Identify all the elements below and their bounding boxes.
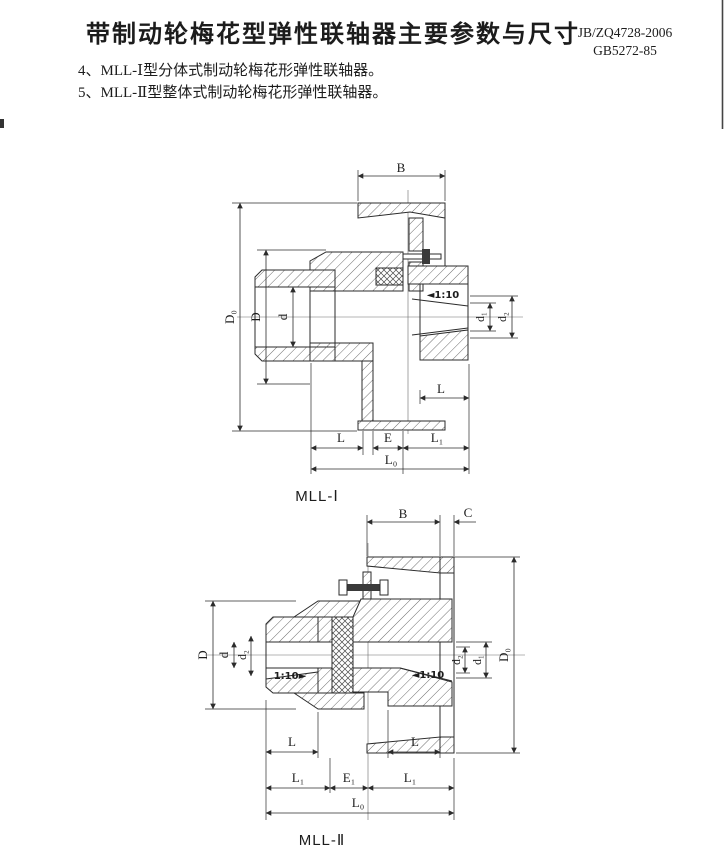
brake-rim-cap-top bbox=[440, 557, 454, 573]
dim-label-d-2: d bbox=[216, 651, 231, 658]
left-jaw-upper bbox=[318, 617, 332, 642]
brake-wheel-web-upper bbox=[409, 218, 423, 251]
left-flange-upper-2 bbox=[294, 601, 364, 617]
dim-label-d2r-2: d₂ bbox=[451, 655, 463, 665]
brake-wheel-rim-bottom bbox=[358, 421, 445, 430]
dim-label-d-1: d bbox=[275, 313, 290, 320]
dim-label-D-1: D bbox=[248, 312, 263, 321]
dim-label-L1l-2: L₁ bbox=[292, 770, 304, 785]
dim-label-E-1: E bbox=[384, 430, 392, 445]
right-hub-lower bbox=[420, 330, 468, 360]
dim-label-d1-2: d₁ bbox=[472, 655, 484, 665]
dim-label-D0-1: D₀ bbox=[222, 310, 237, 324]
dim-label-L1r-2: L₁ bbox=[404, 770, 416, 785]
brake-wheel-rim-top-2 bbox=[367, 557, 440, 573]
right-flange-upper bbox=[408, 266, 468, 284]
dim-label-L1-1: L₁ bbox=[431, 430, 443, 445]
dim-label-L-1: L bbox=[337, 430, 345, 445]
left-flange-lower bbox=[310, 343, 373, 361]
right-flange-upper-2 bbox=[353, 599, 452, 642]
brake-wheel-rim-top bbox=[358, 203, 445, 218]
taper-label-1: ◄1:10 bbox=[427, 290, 460, 301]
elastomer-spider-1 bbox=[376, 268, 403, 285]
dim-label-d2-1: d₂ bbox=[497, 312, 509, 322]
brake-wheel-web-bottom bbox=[362, 361, 373, 421]
left-flange-lower-2 bbox=[294, 693, 364, 709]
figure-mll-2: B C D d d₂ 1:10► ◄1:10 bbox=[195, 505, 525, 849]
left-hub-upper bbox=[255, 270, 335, 287]
left-jaw-lower bbox=[318, 668, 332, 693]
dim-label-Lr-2: L bbox=[411, 734, 419, 749]
brake-rim-cap-bottom bbox=[440, 737, 454, 753]
scan-edge-marks bbox=[0, 0, 723, 129]
document-page: 带制动轮梅花型弹性联轴器主要参数与尺寸 JB/ZQ4728-2006 GB527… bbox=[0, 0, 725, 855]
dim-label-E1-2: E₁ bbox=[343, 770, 355, 785]
dim-label-C2: C bbox=[464, 505, 473, 520]
dim-label-Ll-2: L bbox=[288, 734, 296, 749]
dim-label-B2: B bbox=[399, 506, 408, 521]
dim-label-d1-1: d₁ bbox=[475, 312, 487, 322]
technical-drawing: B D₀ D d ◄1:10 d₁ bbox=[0, 0, 725, 855]
dim-label-d2l-2: d₂ bbox=[237, 650, 249, 660]
dim-label-D-2: D bbox=[195, 650, 210, 659]
dimensions-2: B C D d d₂ 1:10► ◄1:10 bbox=[195, 505, 520, 820]
dim-label-D0-2: D₀ bbox=[496, 648, 511, 662]
dim-label-Lhub-1: L bbox=[437, 381, 445, 396]
left-hub-upper-2 bbox=[266, 617, 318, 642]
dim-label-L0-2: L₀ bbox=[352, 795, 364, 810]
dim-label-L0-1: L₀ bbox=[385, 452, 397, 467]
figure1-caption: MLL-Ⅰ bbox=[295, 488, 339, 505]
taper-label-left-2: 1:10► bbox=[274, 671, 307, 682]
elastomer-spider-2 bbox=[332, 617, 353, 693]
figure-mll-1: B D₀ D d ◄1:10 d₁ bbox=[222, 160, 523, 505]
taper-label-right-2: ◄1:10 bbox=[412, 670, 445, 681]
brake-wheel-rim-bottom-2 bbox=[367, 737, 440, 753]
dim-label-B1: B bbox=[397, 160, 406, 175]
figure2-caption: MLL-Ⅱ bbox=[299, 832, 346, 849]
centerlines-1 bbox=[237, 190, 523, 434]
